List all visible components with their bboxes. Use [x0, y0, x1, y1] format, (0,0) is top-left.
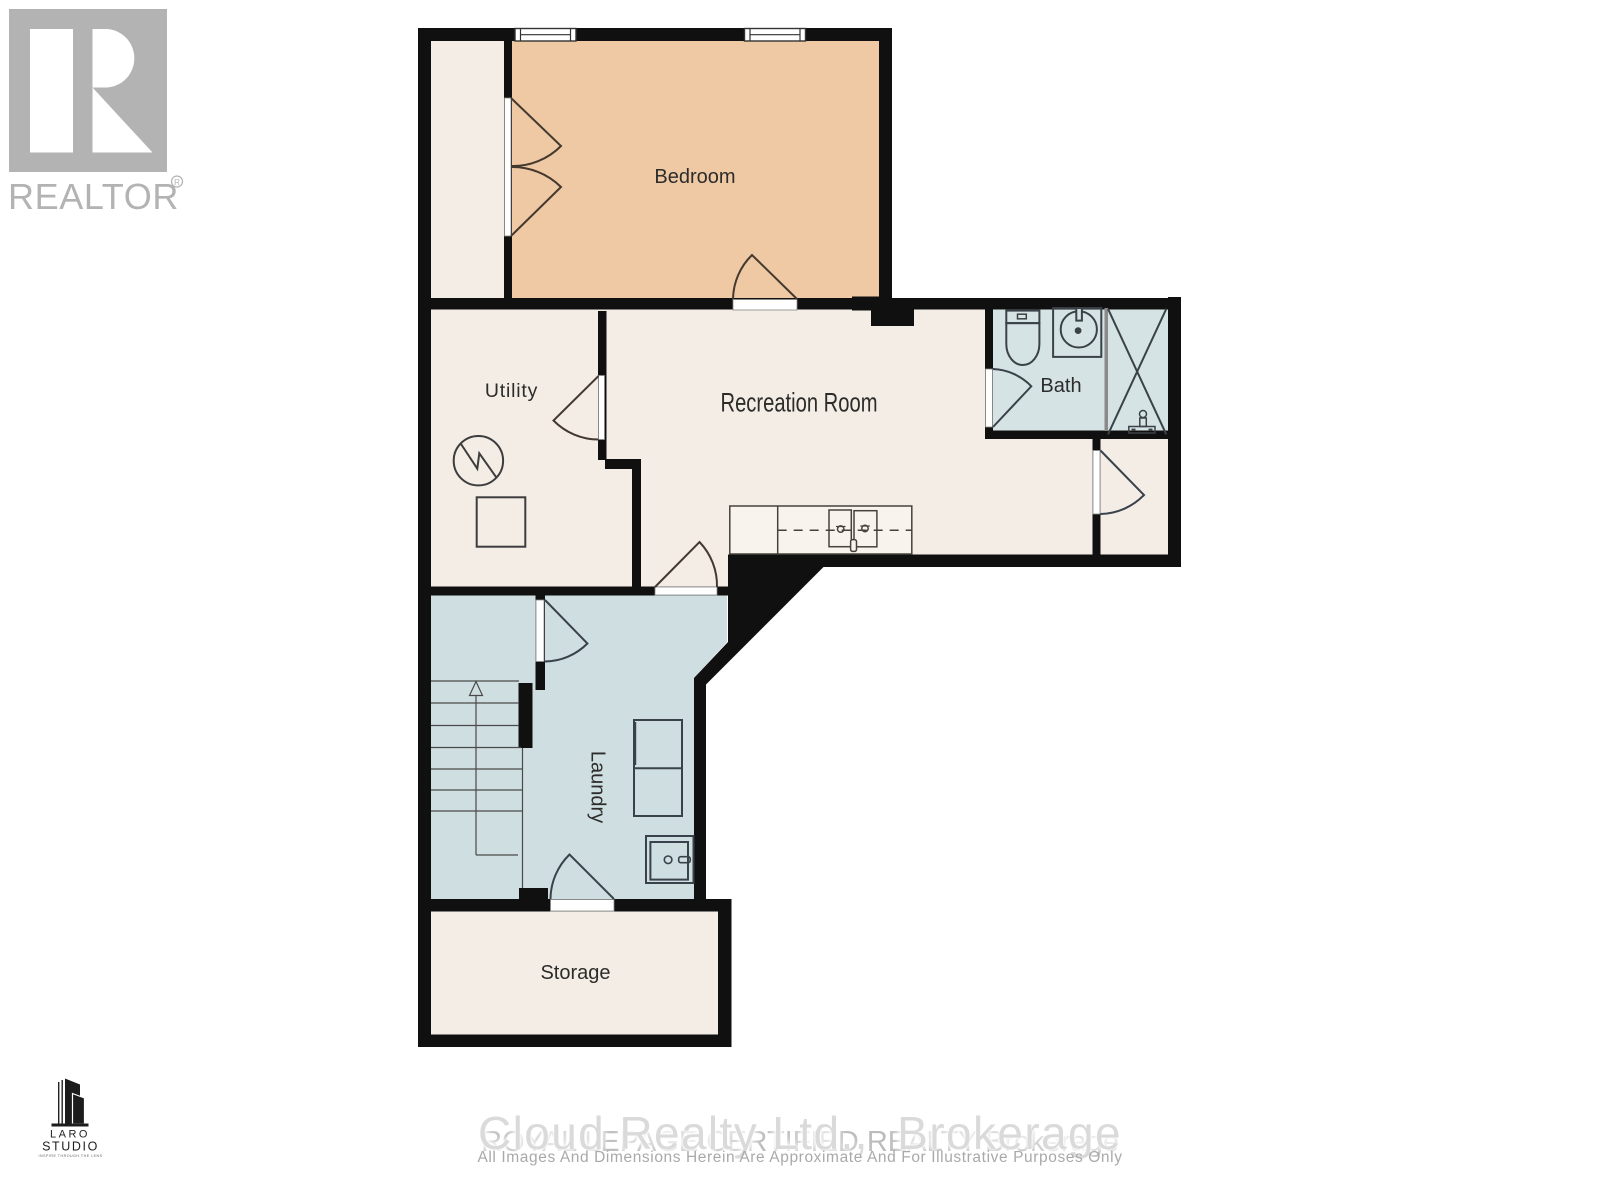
svg-text:REALTOR: REALTOR: [8, 176, 179, 217]
svg-text:Laundry: Laundry: [587, 751, 609, 823]
svg-text:R: R: [174, 178, 180, 187]
svg-text:Bedroom: Bedroom: [654, 166, 735, 188]
svg-text:Bath: Bath: [1040, 375, 1081, 397]
svg-text:Recreation Room: Recreation Room: [721, 387, 878, 417]
svg-text:Storage: Storage: [540, 962, 610, 984]
svg-text:Utility: Utility: [485, 380, 538, 402]
